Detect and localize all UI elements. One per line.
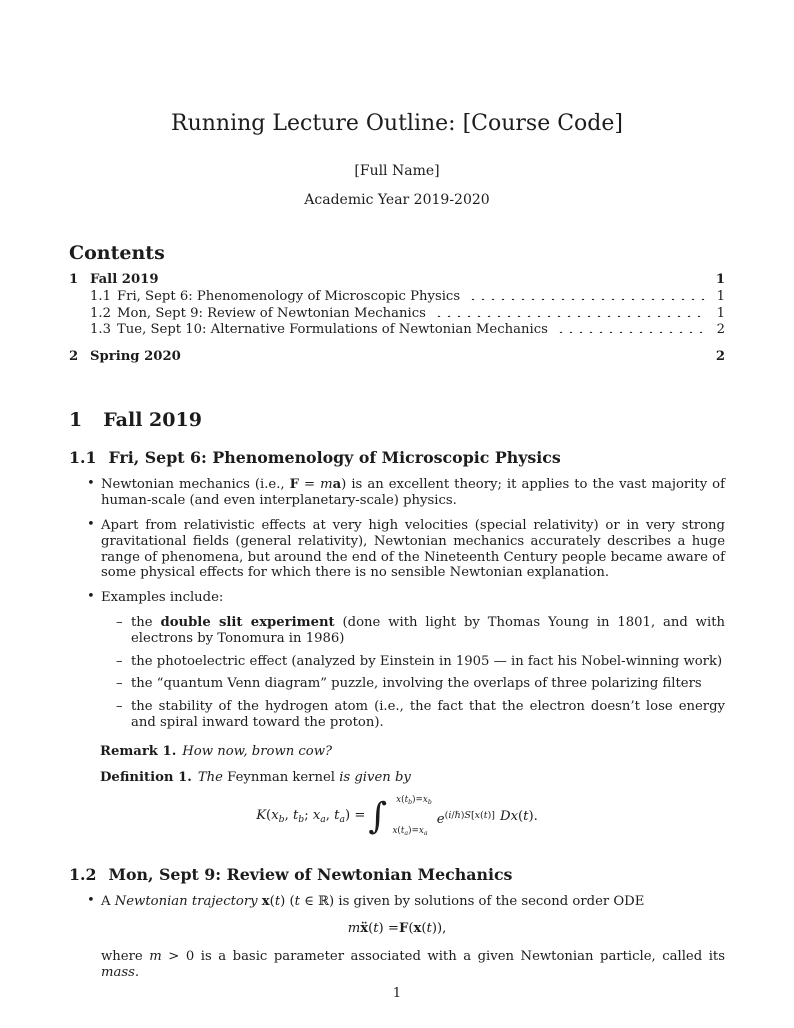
list-item: Newtonian mechanics (i.e., F = ma) is an… <box>101 477 725 509</box>
definition-paragraph: Definition 1.The Feynman kernel is given… <box>100 770 725 786</box>
list-item: the stability of the hydrogen atom (i.e.… <box>131 699 725 731</box>
dot-leader <box>466 288 706 300</box>
definition-label: Definition 1. <box>100 770 192 785</box>
section-title: Fall 2019 <box>103 409 202 431</box>
date-line: Academic Year 2019-2020 <box>0 193 794 209</box>
title-block: Running Lecture Outline: [Course Code] [… <box>0 0 794 209</box>
toc-entry-page: 1 <box>709 289 725 305</box>
feynman-kernel-equation: K(xb, tb; xa, ta) = ∫ x(tb)=xb x(ta)=xa … <box>69 791 725 843</box>
bullet-list: Newtonian mechanics (i.e., F = ma) is an… <box>69 477 725 730</box>
document-page: Running Lecture Outline: [Course Code] [… <box>0 0 794 1028</box>
toc-entry-section-2[interactable]: 2 Spring 2020 2 <box>69 349 725 365</box>
toc-entry-label: Tue, Sept 10: Alternative Formulations o… <box>117 322 551 338</box>
toc-entry-subsection-1-2[interactable]: 1.2 Mon, Sept 9: Review of Newtonian Mec… <box>90 305 725 322</box>
path-integral-measure: Dx(t). <box>500 809 538 825</box>
integral-upper-limit: x(tb)=xb <box>396 795 432 808</box>
definition-body: The Feynman kernel is given by <box>198 770 411 785</box>
list-item: A Newtonian trajectory x(t) (t ∈ ℝ) is g… <box>101 894 725 980</box>
toc-entry-page: 2 <box>709 322 725 338</box>
toc-entry-number: 1.1 <box>90 289 117 305</box>
remark-paragraph: Remark 1.How now, brown cow? <box>100 744 725 760</box>
subsection-title: Fri, Sept 6: Phenomenology of Microscopi… <box>108 448 560 467</box>
page-number: 1 <box>0 986 794 1002</box>
list-item: Examples include: the double slit experi… <box>101 590 725 731</box>
page-title: Running Lecture Outline: [Course Code] <box>0 111 794 137</box>
remark-body: How now, brown cow? <box>182 744 332 759</box>
sub-bullet-list: the double slit experiment (done with li… <box>101 615 725 731</box>
remark-label: Remark 1. <box>100 744 176 759</box>
toc-entry-section-1[interactable]: 1 Fall 2019 1 <box>69 272 725 288</box>
toc-entry-number: 1 <box>69 272 90 288</box>
author-line: [Full Name] <box>0 164 794 180</box>
table-of-contents: Contents 1 Fall 2019 1 1.1 Fri, Sept 6: … <box>69 246 725 365</box>
toc-entry-number: 1.3 <box>90 322 117 338</box>
subsection-number: 1.2 <box>69 865 96 884</box>
toc-entry-label: Mon, Sept 9: Review of Newtonian Mechani… <box>117 306 429 322</box>
dot-leader <box>554 321 706 333</box>
list-item: the double slit experiment (done with li… <box>131 615 725 647</box>
list-item-text: Examples include: <box>101 590 223 605</box>
section-heading-fall-2019: 1 Fall 2019 <box>69 409 725 431</box>
newton-equation: m ẍ(t) = F(x(t)), <box>69 921 725 937</box>
list-item: the “quantum Venn diagram” puzzle, invol… <box>131 676 725 692</box>
toc-entry-label: Spring 2020 <box>90 349 184 365</box>
toc-entry-page: 1 <box>709 306 725 322</box>
toc-entry-label: Fri, Sept 6: Phenomenology of Microscopi… <box>117 289 463 305</box>
toc-entry-page: 1 <box>709 272 725 288</box>
toc-entry-label: Fall 2019 <box>90 272 162 288</box>
text-column: Contents 1 Fall 2019 1 1.1 Fri, Sept 6: … <box>69 246 725 981</box>
bullet-list: A Newtonian trajectory x(t) (t ∈ ℝ) is g… <box>69 894 725 980</box>
subsection-number: 1.1 <box>69 448 96 467</box>
toc-entry-subsection-1-3[interactable]: 1.3 Tue, Sept 10: Alternative Formulatio… <box>90 321 725 338</box>
list-item-text: A Newtonian trajectory x(t) (t ∈ ℝ) is g… <box>101 894 644 909</box>
toc-entry-number: 2 <box>69 349 90 365</box>
integral-sign: ∫ <box>368 801 387 833</box>
subsection-title: Mon, Sept 9: Review of Newtonian Mechani… <box>108 865 512 884</box>
integral-limits: x(tb)=xb x(ta)=xa <box>388 795 432 839</box>
continuation-text: where m > 0 is a basic parameter associa… <box>101 949 725 981</box>
exponent: (i/ℏ)S[x(t)] <box>445 810 495 821</box>
toc-entry-subsection-1-1[interactable]: 1.1 Fri, Sept 6: Phenomenology of Micros… <box>90 288 725 305</box>
subsection-heading-1-1: 1.1 Fri, Sept 6: Phenomenology of Micros… <box>69 448 725 467</box>
exponential-term: e(i/ℏ)S[x(t)] <box>437 808 495 828</box>
section-number: 1 <box>69 409 82 431</box>
subsection-heading-1-2: 1.2 Mon, Sept 9: Review of Newtonian Mec… <box>69 865 725 884</box>
integral-lower-limit: x(ta)=xa <box>388 826 432 839</box>
equation-lhs: K(xb, tb; xa, ta) = <box>256 808 365 828</box>
dot-leader <box>432 305 706 317</box>
toc-entry-number: 1.2 <box>90 306 117 322</box>
list-item: Apart from relativistic effects at very … <box>101 518 725 581</box>
exponential-base: e <box>437 811 445 826</box>
toc-entry-page: 2 <box>709 349 725 365</box>
toc-heading: Contents <box>69 246 725 262</box>
list-item: the photoelectric effect (analyzed by Ei… <box>131 654 725 670</box>
